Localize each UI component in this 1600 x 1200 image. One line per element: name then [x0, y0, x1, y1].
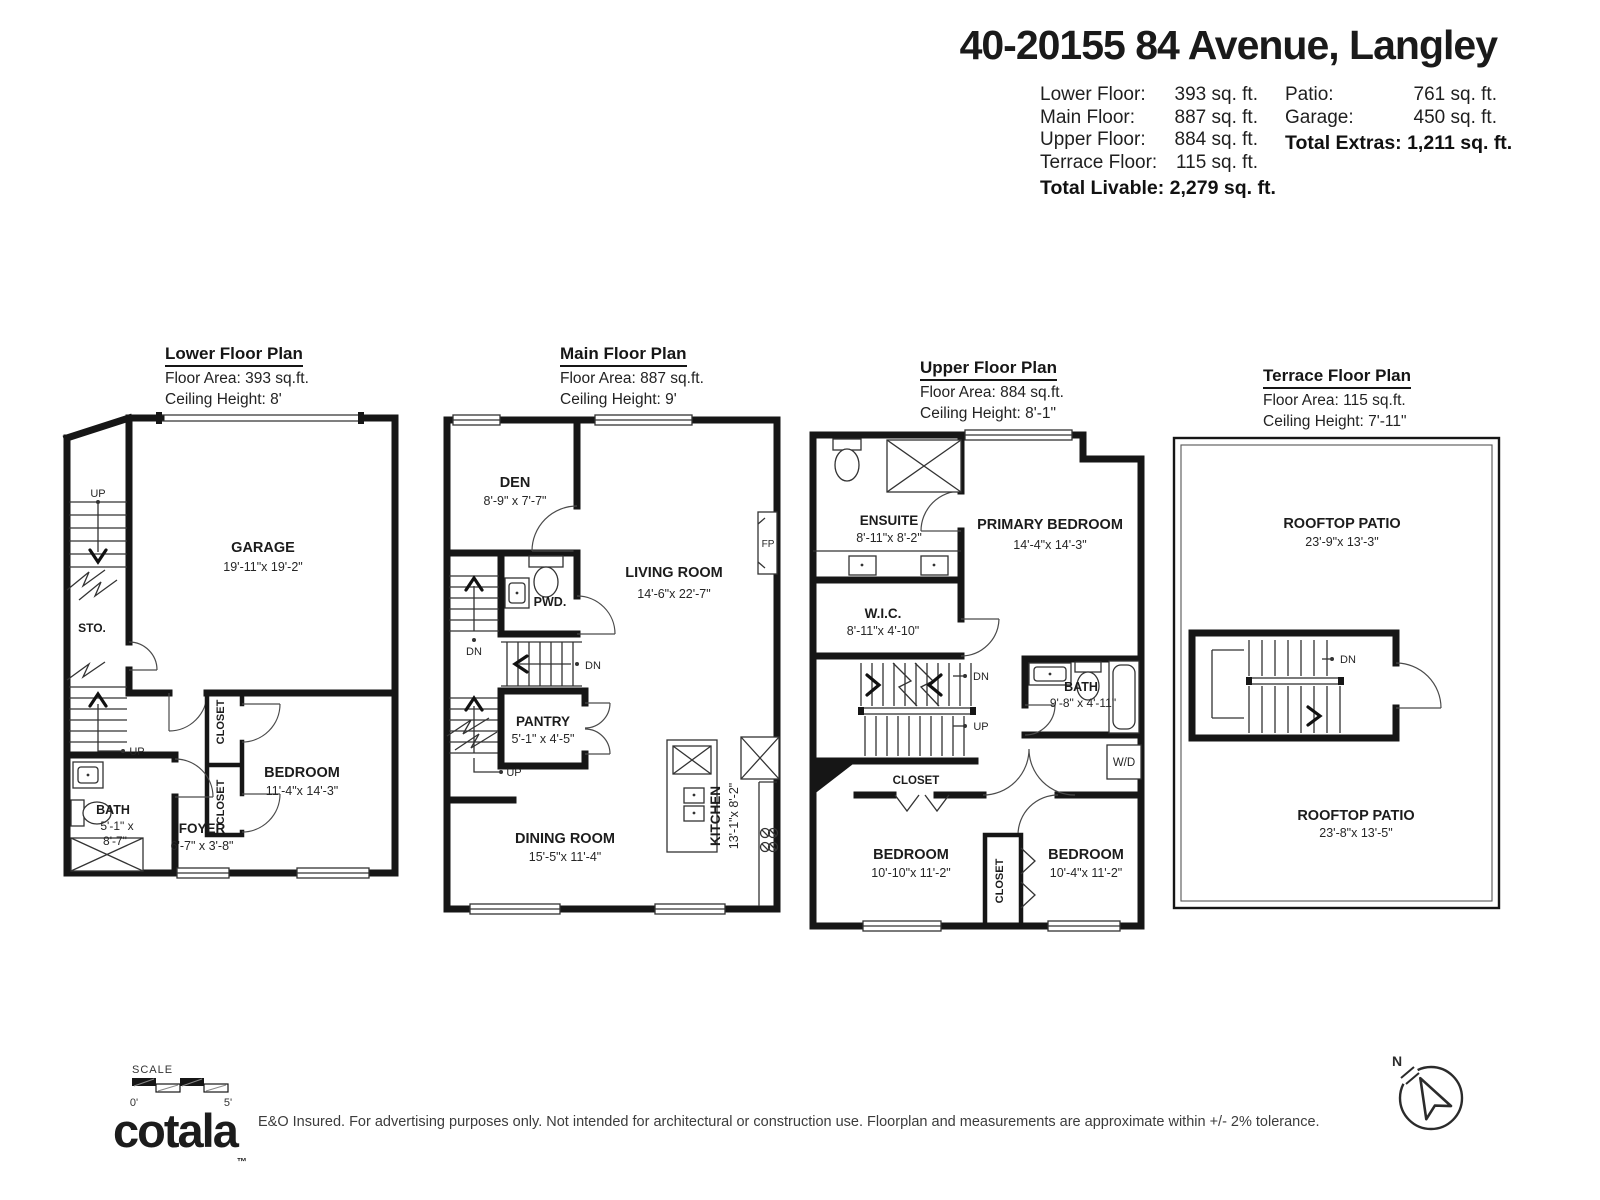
den-label: DEN: [500, 475, 531, 491]
dn-label: DN: [585, 660, 601, 672]
main-plan-header: Main Floor Plan Floor Area: 887 sq.ft. C…: [560, 344, 704, 409]
pantry-dims: 5'-1" x 4'-5": [512, 732, 575, 746]
powder-label: PWD.: [534, 595, 567, 609]
bedroom-label: BEDROOM: [873, 847, 949, 863]
disclaimer-text: E&O Insured. For advertising purposes on…: [258, 1114, 1320, 1130]
plan-title: Upper Floor Plan: [920, 358, 1057, 381]
bedroom-label: BEDROOM: [1048, 847, 1124, 863]
primary-bedroom-dims: 14'-4"x 14'-3": [1013, 538, 1086, 552]
up-label: UP: [973, 721, 988, 733]
dn-label: DN: [1340, 654, 1356, 666]
dn-label: DN: [466, 646, 482, 658]
plan-title: Main Floor Plan: [560, 344, 687, 367]
wic-label: W.I.C.: [865, 606, 902, 621]
stat-row: Patio:761 sq. ft.: [1285, 84, 1497, 107]
floorplan-sheet: 40-20155 84 Avenue, Langley Lower Floor:…: [0, 0, 1600, 1200]
scale-label: SCALE: [132, 1064, 173, 1076]
stair-enclosure: [1192, 633, 1441, 738]
compass-n-label: N: [1392, 1053, 1402, 1069]
garage-dims: 19'-11"x 19'-2": [223, 560, 302, 574]
living-room-dims: 14'-6"x 22'-7": [637, 587, 710, 601]
plan-area: Floor Area: 887 sq.ft.: [560, 370, 704, 388]
plan-area: Floor Area: 393 sq.ft.: [165, 370, 309, 388]
stairs: [858, 663, 976, 756]
dining-room-label: DINING ROOM: [515, 831, 615, 847]
powder-room: [501, 553, 615, 634]
pantry-label: PANTRY: [516, 714, 570, 729]
bath-sink: [73, 762, 103, 788]
stairs-up-left: [447, 698, 503, 774]
stairs-upper: [67, 500, 127, 600]
closet-label: CLOSET: [215, 699, 227, 744]
lower-floor-plan-drawing: UP STO. UP GARAGE 19'-11"x 19'-2" CLOSET…: [57, 402, 402, 887]
plan-title: Terrace Floor Plan: [1263, 366, 1411, 389]
closet-label: CLOSET: [994, 858, 1006, 903]
upper-floor-plan-drawing: ENSUITE 8'-11"x 8'-2" PRIMARY BEDROOM 14…: [803, 423, 1148, 935]
up-label: UP: [129, 746, 144, 758]
wic-dims: 8'-11"x 4'-10": [847, 624, 919, 638]
bedroom-closet: [985, 835, 1035, 926]
rooftop-patio-dims: 23'-9"x 13'-3": [1305, 535, 1378, 549]
upper-plan-header: Upper Floor Plan Floor Area: 884 sq.ft. …: [920, 358, 1064, 423]
garage-label: GARAGE: [231, 540, 295, 556]
bedroom-dims: 10'-4"x 11'-2": [1050, 866, 1122, 880]
rooftop-patio-label: ROOFTOP PATIO: [1283, 516, 1400, 532]
terrace-plan-header: Terrace Floor Plan Floor Area: 115 sq.ft…: [1263, 366, 1411, 431]
closet-label: CLOSET: [893, 775, 940, 787]
terrace-floor-plan-drawing: DN ROOFTOP PATIO 23'-9"x 13'-3" ROOFTOP …: [1164, 428, 1509, 918]
bath-dims: 8'-7": [103, 834, 127, 848]
stat-row: Main Floor:887 sq. ft.: [1040, 107, 1258, 130]
north-compass-icon: N: [1383, 1040, 1478, 1140]
floor-stats-left: Lower Floor:393 sq. ft. Main Floor:887 s…: [1040, 84, 1258, 174]
stairs-down-left: [449, 576, 499, 642]
dn-label: DN: [973, 671, 989, 683]
washer-dryer-label: W/D: [1113, 757, 1135, 769]
kitchen-dims: 13'-1"x 8'-2": [727, 783, 741, 849]
up-label: UP: [90, 488, 105, 500]
primary-bedroom-label: PRIMARY BEDROOM: [977, 517, 1123, 533]
fridge: [741, 737, 779, 779]
toilet: [833, 439, 861, 481]
plan-ceiling: Ceiling Height: 8'-1": [920, 405, 1064, 423]
stat-row: Garage:450 sq. ft.: [1285, 107, 1497, 130]
foyer-label: FOYER: [179, 821, 226, 836]
double-vanity: [813, 551, 961, 575]
closet-label: CLOSET: [215, 779, 227, 824]
foyer-dims: 6'-7" x 3'-8": [171, 839, 234, 853]
up-label: UP: [506, 767, 521, 779]
total-livable: Total Livable: 2,279 sq. ft.: [1040, 177, 1276, 200]
page-title: 40-20155 84 Avenue, Langley: [960, 22, 1497, 69]
bedroom-label: BEDROOM: [264, 765, 340, 781]
north-arrow: [1408, 1072, 1451, 1120]
stat-row: Terrace Floor:115 sq. ft.: [1040, 152, 1258, 175]
storage-label: STO.: [78, 621, 106, 635]
stairs-down-mid: [501, 642, 582, 686]
rooftop-patio-label: ROOFTOP PATIO: [1297, 808, 1414, 824]
dining-room-dims: 15'-5"x 11'-4": [529, 850, 601, 864]
bath-dims: 9'-8" x 4'-11": [1050, 696, 1116, 710]
ensuite-label: ENSUITE: [860, 513, 919, 528]
living-room-label: LIVING ROOM: [625, 565, 722, 581]
total-extras: Total Extras: 1,211 sq. ft.: [1285, 132, 1512, 155]
scale-ruler: [132, 1078, 228, 1092]
stairs-lower: [67, 662, 127, 753]
plan-area: Floor Area: 884 sq.ft.: [920, 384, 1064, 402]
lower-plan-header: Lower Floor Plan Floor Area: 393 sq.ft. …: [165, 344, 309, 409]
plan-title: Lower Floor Plan: [165, 344, 303, 367]
bath-label: BATH: [1064, 680, 1098, 694]
stat-row: Lower Floor:393 sq. ft.: [1040, 84, 1258, 107]
floor-stats-right: Patio:761 sq. ft. Garage:450 sq. ft.: [1285, 84, 1497, 129]
garage-door: [156, 412, 364, 424]
cotala-logo: cotala™: [113, 1103, 247, 1168]
plan-area: Floor Area: 115 sq.ft.: [1263, 392, 1411, 410]
bedroom-dims: 11'-4"x 14'-3": [266, 784, 338, 798]
den-dims: 8'-9" x 7'-7": [484, 494, 547, 508]
bath-dims: 5'-1" x: [100, 819, 133, 833]
shower: [887, 440, 961, 492]
bath-label: BATH: [96, 803, 130, 817]
trademark-symbol: ™: [237, 1157, 247, 1168]
kitchen-label: KITCHEN: [708, 786, 723, 846]
fireplace-label: FP: [762, 539, 775, 550]
rooftop-patio-dims: 23'-8"x 13'-5": [1319, 826, 1392, 840]
stat-row: Upper Floor:884 sq. ft.: [1040, 129, 1258, 152]
ensuite-dims: 8'-11"x 8'-2": [856, 531, 922, 545]
main-floor-plan-drawing: DEN 8'-9" x 7'-7" LIVING ROOM 14'-6"x 22…: [437, 406, 787, 918]
bedroom-dims: 10'-10"x 11'-2": [871, 866, 950, 880]
